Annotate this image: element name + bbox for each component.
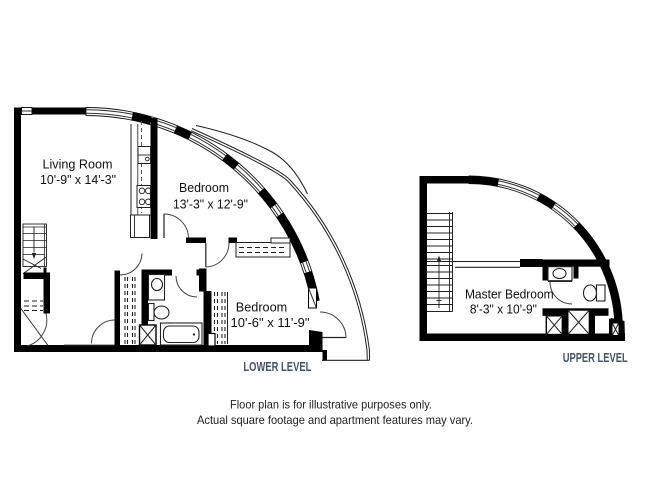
svg-text:Master Bedroom: Master Bedroom bbox=[465, 287, 554, 302]
svg-text:13'-3" x 12'-9": 13'-3" x 12'-9" bbox=[173, 197, 248, 212]
svg-text:Floor plan is for illustrative: Floor plan is for illustrative purposes … bbox=[230, 398, 432, 412]
svg-text:Bedroom: Bedroom bbox=[179, 180, 229, 195]
svg-text:10'-6" x 11'-9": 10'-6" x 11'-9" bbox=[231, 315, 310, 330]
svg-text:Actual square footage and apar: Actual square footage and apartment feat… bbox=[197, 413, 473, 427]
svg-text:Living Room: Living Room bbox=[43, 157, 113, 172]
svg-text:10'-9" x 14'-3": 10'-9" x 14'-3" bbox=[40, 172, 116, 187]
svg-text:Bedroom: Bedroom bbox=[236, 300, 288, 315]
svg-text:8'-3" x 10'-9": 8'-3" x 10'-9" bbox=[470, 302, 537, 317]
svg-text:UPPER LEVEL: UPPER LEVEL bbox=[563, 350, 628, 365]
svg-text:LOWER LEVEL: LOWER LEVEL bbox=[243, 359, 311, 374]
